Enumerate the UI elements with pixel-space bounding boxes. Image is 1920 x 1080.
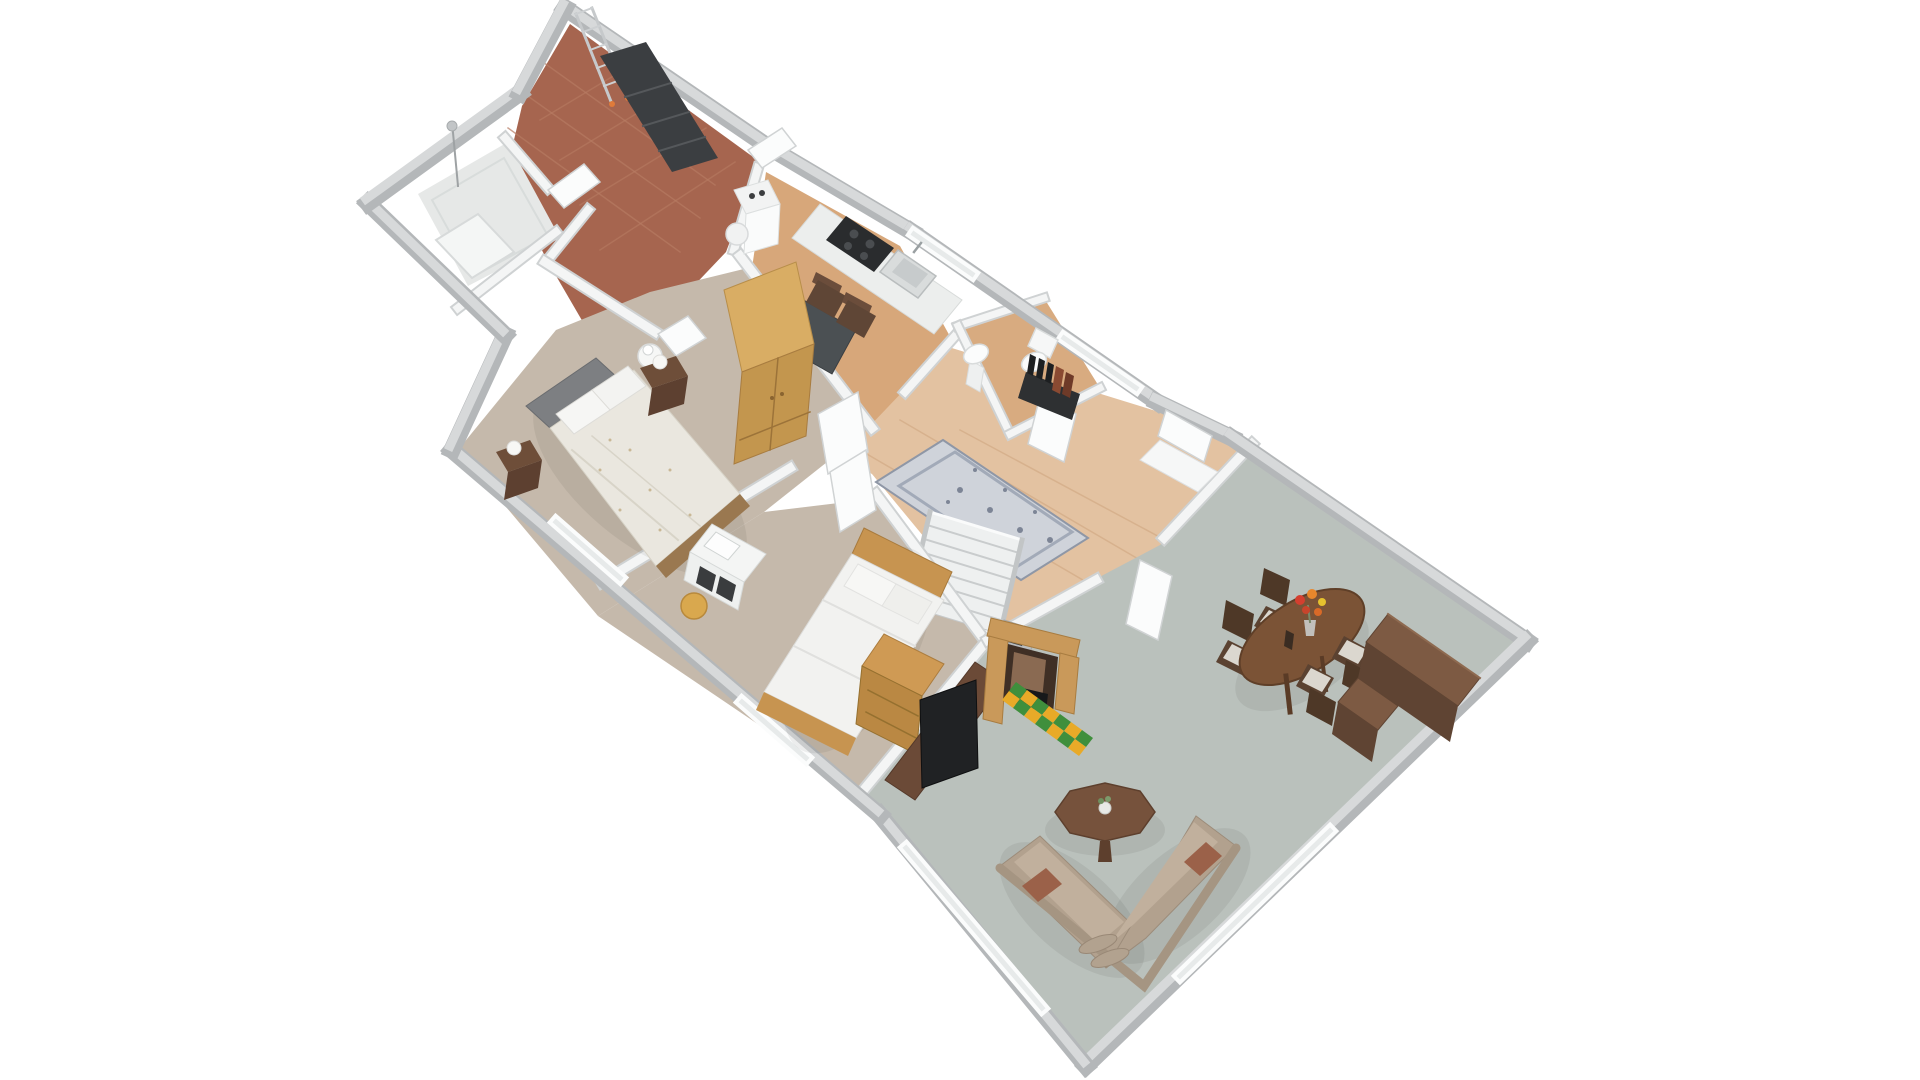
burner: [866, 240, 875, 249]
wardrobe-knob: [770, 396, 774, 400]
table-jug: [643, 345, 653, 355]
duvet-speckle: [669, 469, 672, 472]
rug-motif: [1033, 510, 1037, 514]
burner: [860, 252, 868, 260]
yellow-stool: [681, 593, 707, 619]
rug-motif: [957, 487, 963, 493]
rug-motif: [1047, 537, 1053, 543]
bedside-lamp: [653, 355, 667, 369]
coffee-table-leg: [1098, 841, 1112, 862]
rug-motif: [1017, 527, 1023, 533]
duvet-speckle: [659, 529, 662, 532]
wardrobe-knob: [780, 392, 784, 396]
utility-bin: [726, 223, 748, 245]
duvet-speckle: [689, 514, 692, 517]
duvet-speckle: [619, 509, 622, 512]
rug-motif: [1003, 488, 1007, 492]
ladder-foot: [609, 101, 615, 107]
burner: [850, 230, 859, 239]
floor-plan-svg: [0, 0, 1920, 1080]
table-plant: [1105, 796, 1111, 802]
rug-motif: [946, 500, 950, 504]
flower: [1314, 608, 1322, 616]
rug-motif: [987, 507, 993, 513]
flower: [1302, 606, 1310, 614]
flower: [1318, 598, 1326, 606]
floor-plan-screenshot: [0, 0, 1920, 1080]
rug-motif: [973, 468, 977, 472]
flower: [1307, 589, 1317, 599]
shower-head: [447, 121, 457, 131]
washer-knob: [759, 190, 765, 196]
duvet-speckle: [629, 449, 632, 452]
bedside-lamp: [507, 441, 521, 455]
flower: [1295, 595, 1305, 605]
washer-knob: [749, 193, 755, 199]
burner: [844, 242, 852, 250]
duvet-speckle: [609, 439, 612, 442]
table-plant: [1098, 798, 1104, 804]
duvet-speckle: [649, 489, 652, 492]
duvet-speckle: [599, 469, 602, 472]
